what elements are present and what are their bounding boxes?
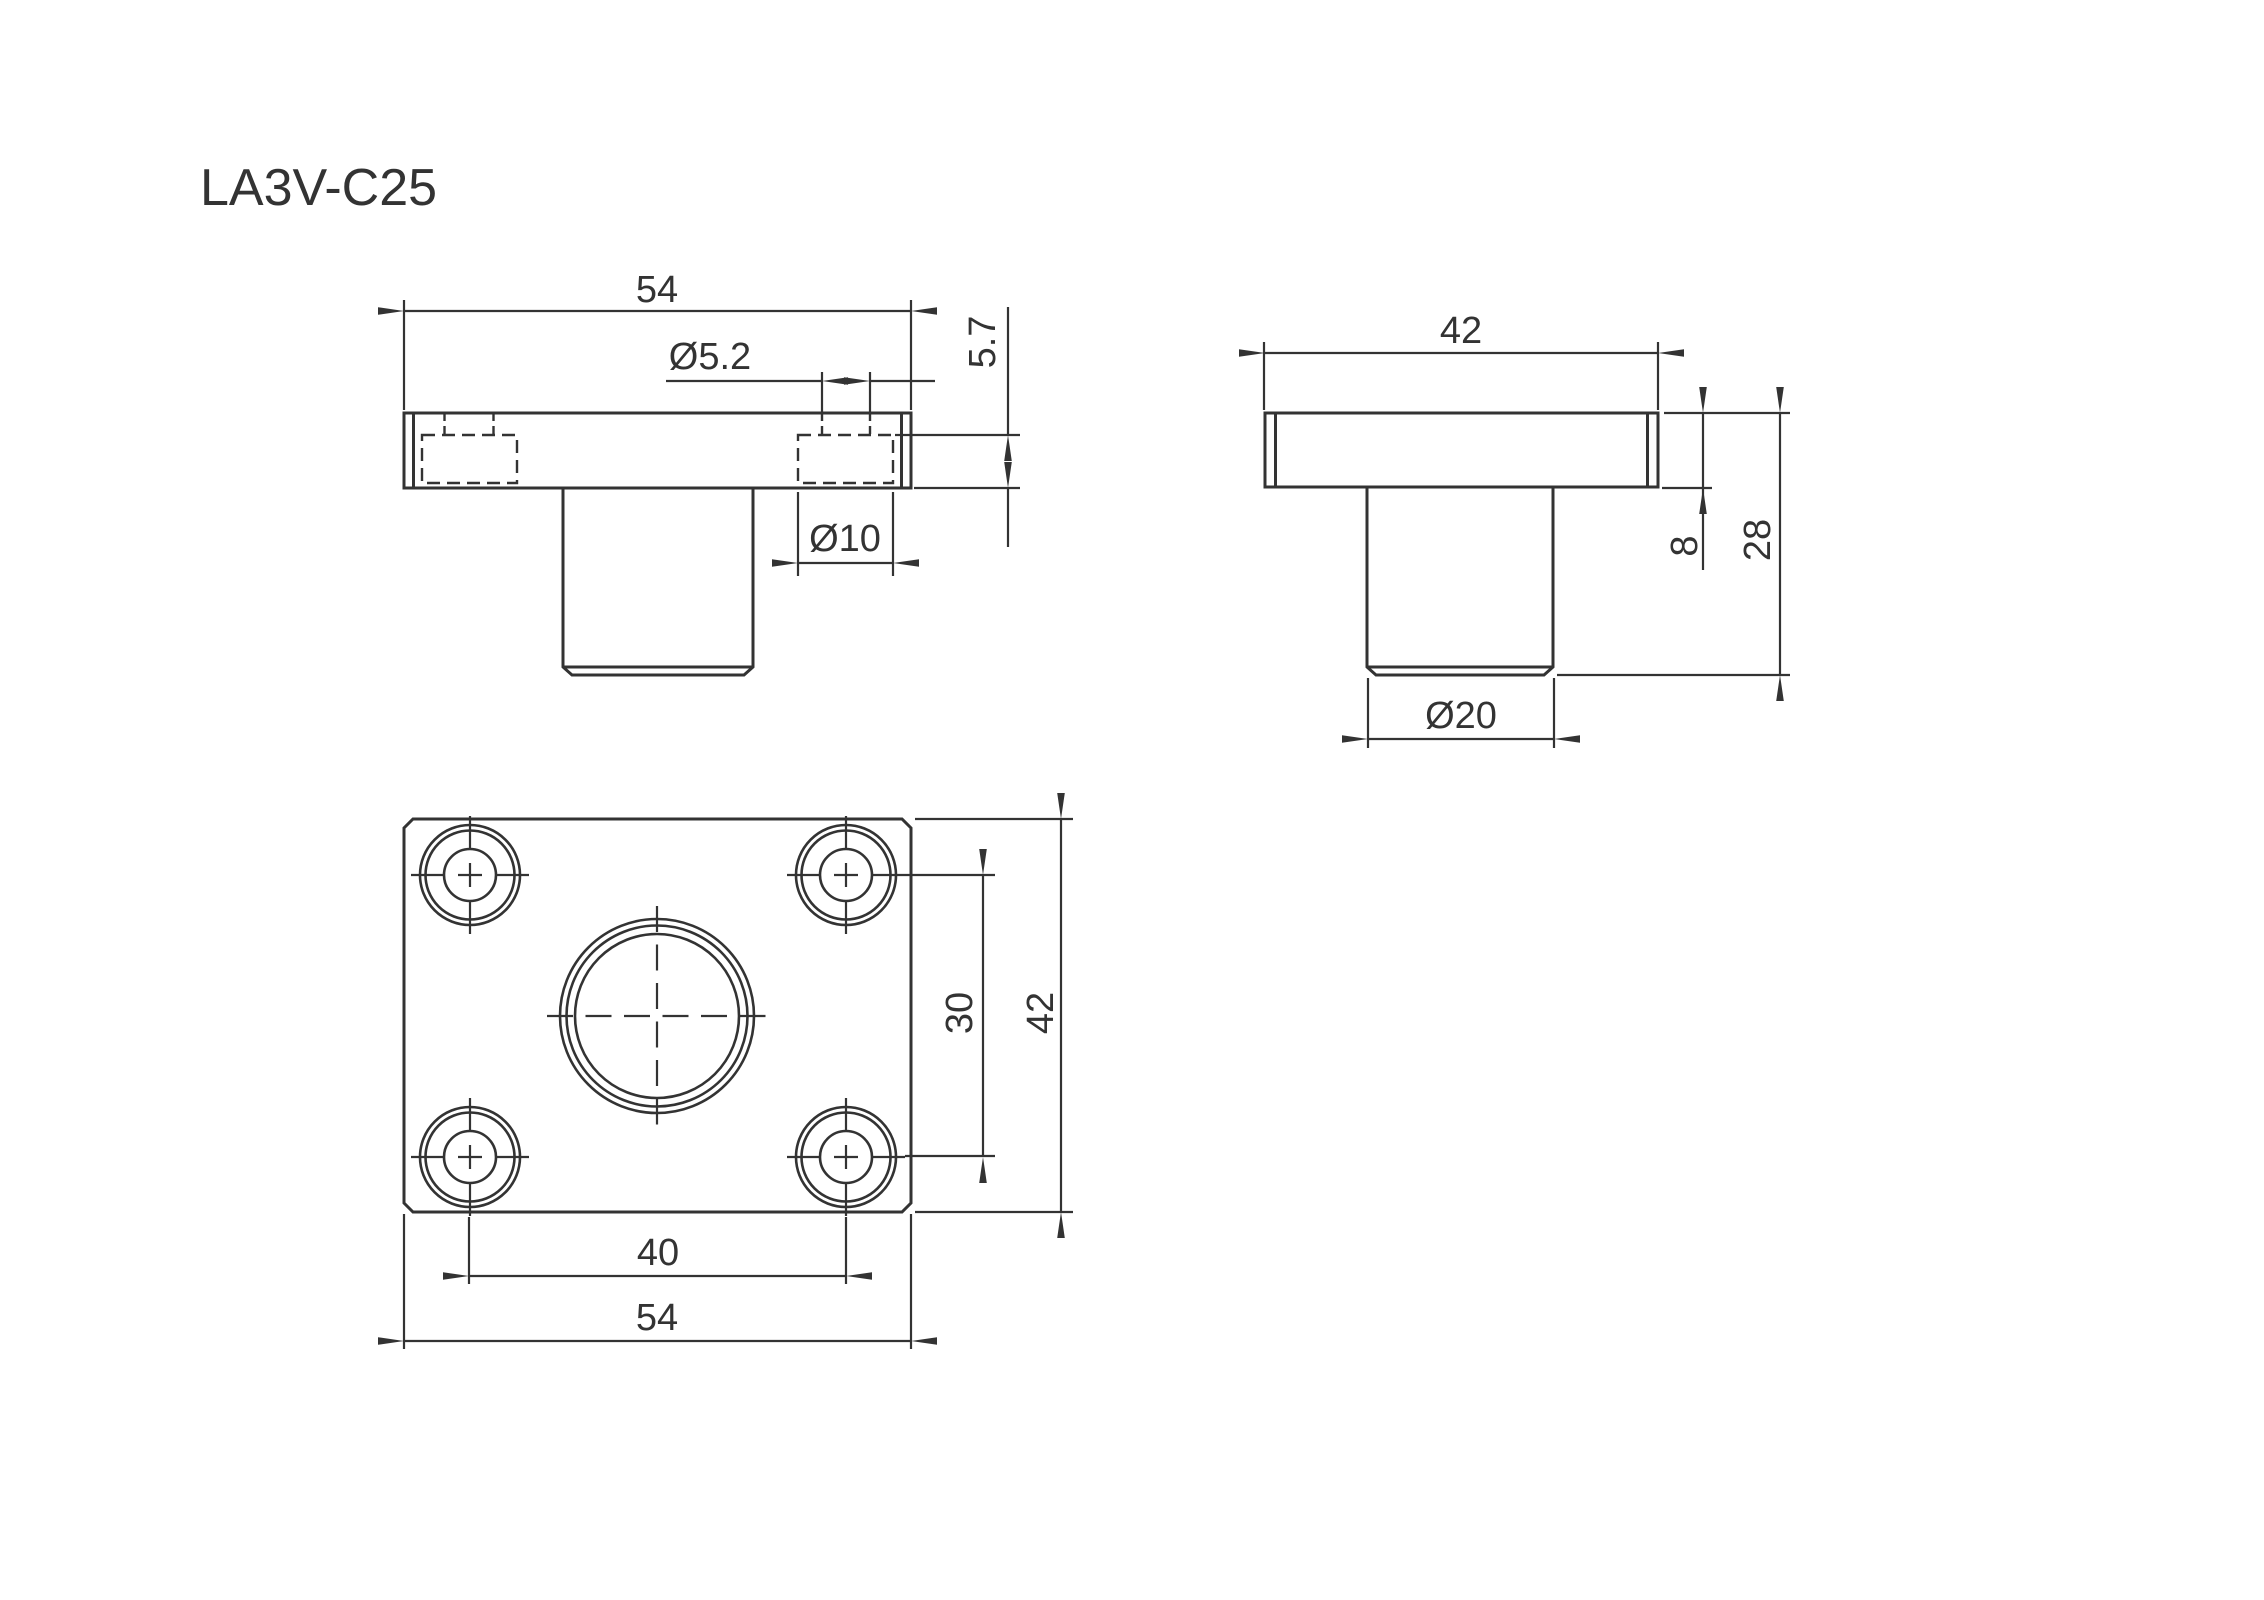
dim-side-width: 42 [1440, 310, 1482, 352]
front-hole-hidden-lines [445, 413, 871, 435]
front-counterbore-right-hidden [798, 435, 893, 483]
side-flange-edge-lines [1276, 413, 1648, 487]
front-flange-outline [404, 413, 911, 488]
bolt-hole-bottom-right [787, 1098, 905, 1216]
drawing-title: LA3V-C25 [200, 159, 437, 217]
drawing-sheet: LA3V-C25 54 Ø5.2 5.7 Ø10 [0, 0, 2264, 1600]
bolt-hole-top-left [411, 816, 529, 934]
bolt-hole-bottom-left [411, 1098, 529, 1216]
side-extension-lines [1264, 342, 1790, 748]
dim-bottom-hole-spacing-horizontal: 40 [637, 1232, 679, 1274]
side-flange-outline [1265, 413, 1658, 487]
technical-drawing: LA3V-C25 54 Ø5.2 5.7 Ø10 [0, 0, 2264, 1600]
front-view: 54 Ø5.2 5.7 Ø10 [404, 269, 1020, 675]
center-boss [547, 906, 767, 1126]
bottom-view: 30 42 40 54 [404, 816, 1073, 1349]
bottom-plate-outline [404, 819, 911, 1212]
dim-front-flange-width: 54 [636, 269, 678, 311]
bolt-hole-top-right [787, 816, 905, 934]
dim-bottom-hole-spacing-vertical: 30 [939, 992, 981, 1034]
dim-front-counterbore-depth: 5.7 [962, 316, 1004, 369]
front-counterbore-left-hidden [422, 435, 517, 483]
side-boss-outline [1367, 487, 1553, 675]
dim-front-hole-diameter: Ø5.2 [669, 336, 751, 378]
dim-bottom-plate-width: 54 [636, 1297, 678, 1339]
dim-side-boss-diameter: Ø20 [1425, 695, 1497, 737]
dim-bottom-plate-depth: 42 [1020, 992, 1062, 1034]
side-view: 42 8 28 Ø20 [1264, 310, 1790, 748]
dim-side-height: 28 [1737, 519, 1779, 561]
front-flange-edge-lines [414, 413, 902, 488]
bottom-extension-lines [404, 819, 1073, 1349]
dim-front-counterbore-diameter: Ø10 [809, 518, 881, 560]
front-boss-outline [563, 488, 753, 675]
dim-side-thickness: 8 [1664, 535, 1706, 556]
